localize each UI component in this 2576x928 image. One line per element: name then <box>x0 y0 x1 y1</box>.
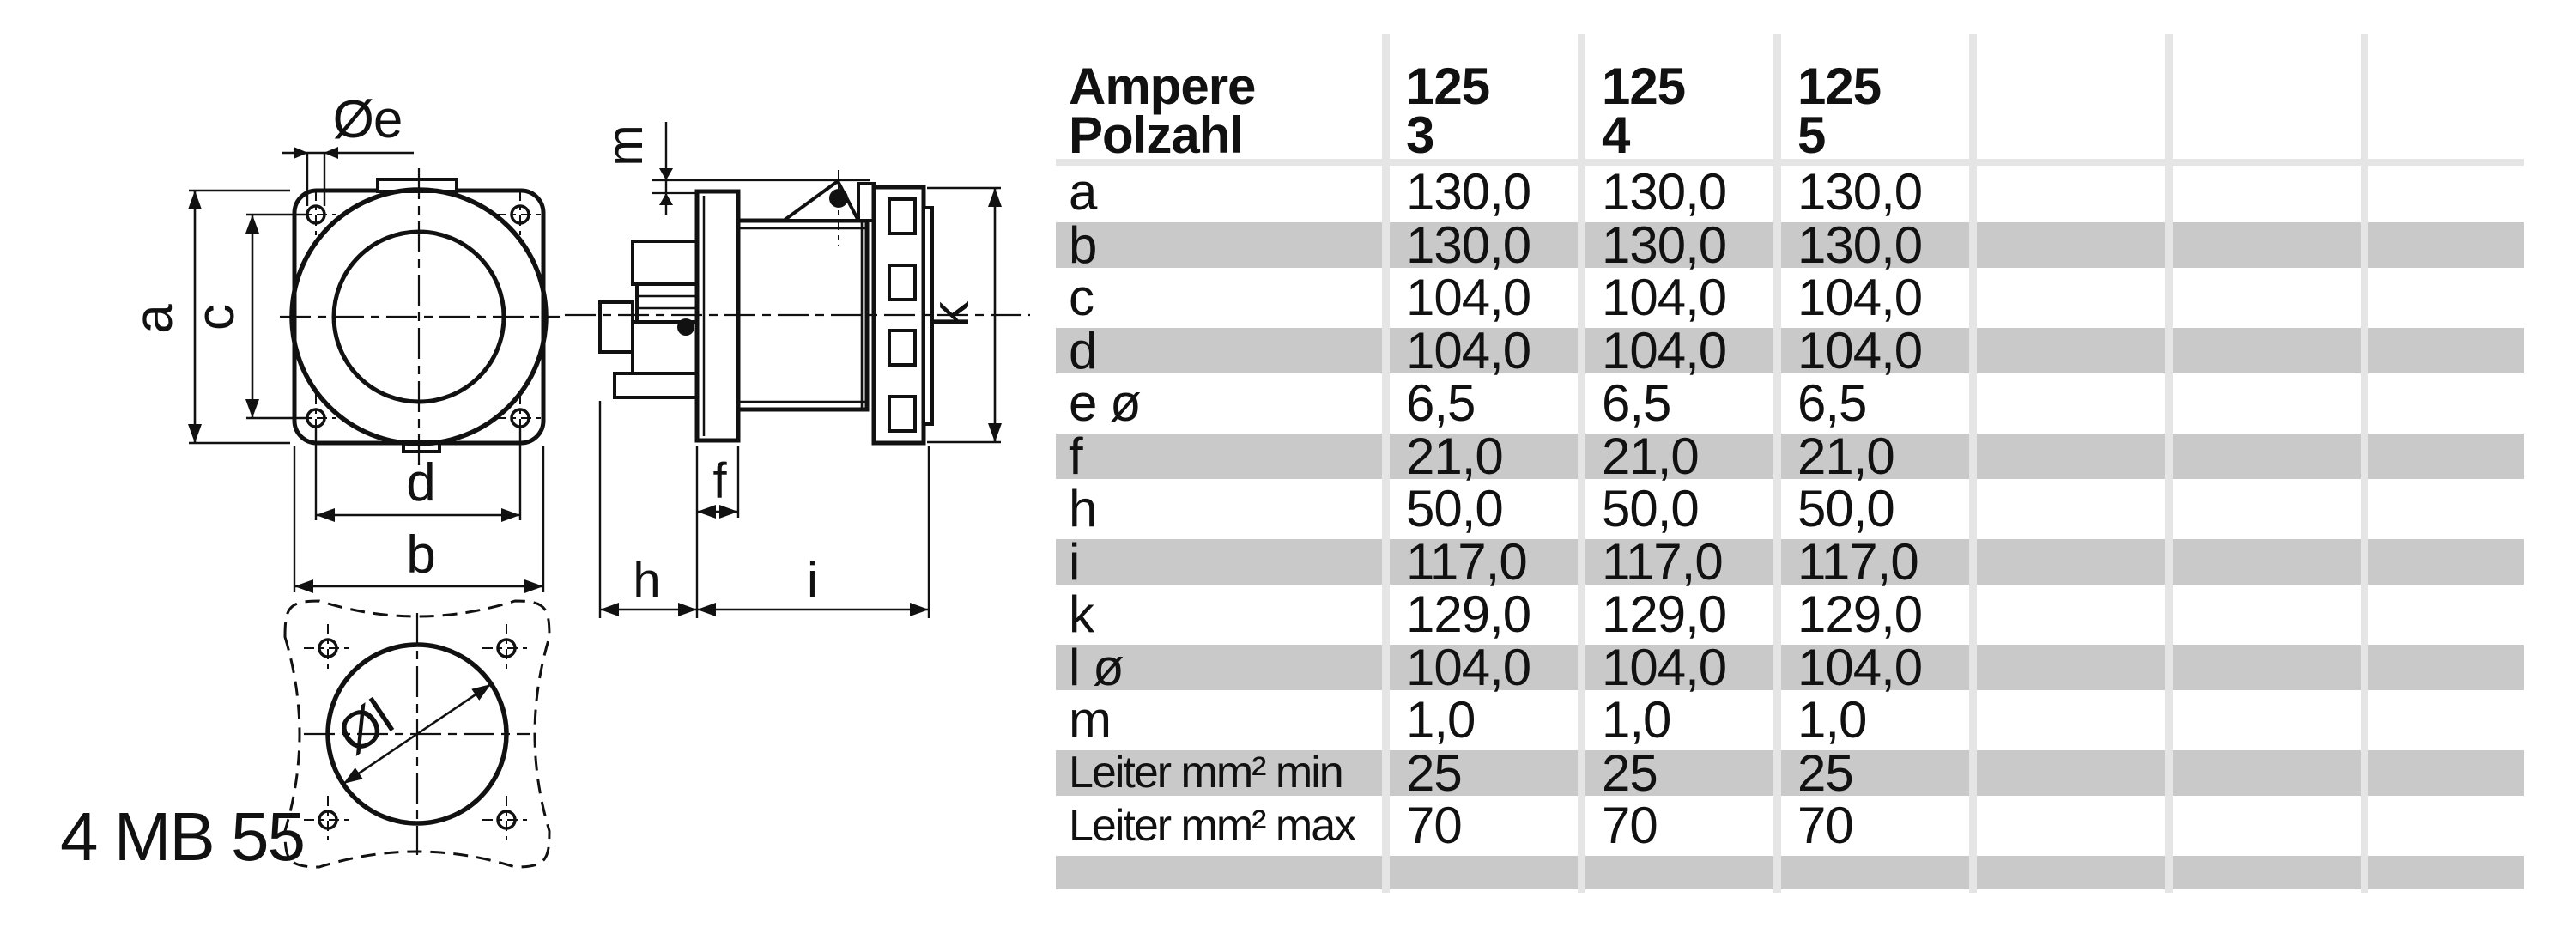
column-separator <box>2165 34 2173 893</box>
cell: 104,0 <box>1578 638 1773 697</box>
cell: 25 <box>1382 743 1578 803</box>
cell: 130,0 <box>1382 162 1578 221</box>
cell: 130,0 <box>1773 162 1969 221</box>
header-polzahl-label: Polzahl <box>1069 111 1382 160</box>
cell: 1,0 <box>1382 690 1578 749</box>
row-label: Leiter mm² max <box>1056 800 1382 852</box>
cell: 117,0 <box>1382 532 1578 591</box>
cell: 104,0 <box>1773 321 1969 380</box>
header-col-2: 125 4 <box>1578 34 1773 159</box>
cell: 104,0 <box>1382 638 1578 697</box>
cell: 130,0 <box>1382 215 1578 275</box>
column-separator <box>1578 34 1585 893</box>
row-label: f <box>1056 427 1382 486</box>
cell: 25 <box>1773 743 1969 803</box>
table-row-empty <box>1056 852 2524 893</box>
table-row-c: c104,0104,0104,0 <box>1056 271 2524 324</box>
table-row-d: d104,0104,0104,0 <box>1056 324 2524 378</box>
header-col-5 <box>2165 34 2361 159</box>
cell: 25 <box>1578 743 1773 803</box>
dim-label-i: i <box>807 553 817 609</box>
cell: 104,0 <box>1578 268 1773 327</box>
dim-label-e: Øe <box>333 90 403 149</box>
cell: 104,0 <box>1382 268 1578 327</box>
header-ampere-label: Ampere <box>1069 62 1382 111</box>
table-row-i: i117,0117,0117,0 <box>1056 536 2524 589</box>
cell: 6,5 <box>1578 373 1773 433</box>
dim-label-l: Øl <box>327 688 403 767</box>
header-label-cell: Ampere Polzahl <box>1056 34 1382 159</box>
row-label: c <box>1056 268 1382 327</box>
row-label: b <box>1056 215 1382 275</box>
dim-label-d: d <box>406 453 434 513</box>
datasheet-page: Øe a c d <box>0 0 2576 928</box>
cell: 21,0 <box>1578 427 1773 486</box>
cell: 21,0 <box>1773 427 1969 486</box>
dim-label-b: b <box>406 525 434 585</box>
dim-label-c: c <box>186 305 245 331</box>
cell: 129,0 <box>1382 585 1578 644</box>
table-row-l: l ø104,0104,0104,0 <box>1056 641 2524 694</box>
row-label: m <box>1056 690 1382 749</box>
cell: 70 <box>1578 796 1773 855</box>
table-row-e: e ø6,56,56,5 <box>1056 377 2524 430</box>
cell: 117,0 <box>1773 532 1969 591</box>
cell: 1,0 <box>1773 690 1969 749</box>
cell: 70 <box>1382 796 1578 855</box>
cell: 104,0 <box>1382 321 1578 380</box>
technical-drawing: Øe a c d <box>0 0 1056 928</box>
cell: 6,5 <box>1773 373 1969 433</box>
dim-m: m <box>597 122 673 215</box>
dim-label-a: a <box>124 304 184 334</box>
cell: 70 <box>1773 796 1969 855</box>
dim-f: f <box>697 446 738 518</box>
row-label: Leiter mm² min <box>1056 747 1382 798</box>
table-row-f: f21,021,021,0 <box>1056 430 2524 483</box>
row-label: d <box>1056 321 1382 380</box>
cell: 104,0 <box>1773 268 1969 327</box>
table-row-b: b130,0130,0130,0 <box>1056 219 2524 272</box>
spec-table: Ampere Polzahl 125 3 125 4 125 5 <box>1056 34 2524 893</box>
table-row-a: a130,0130,0130,0 <box>1056 166 2524 219</box>
row-label: l ø <box>1056 638 1382 697</box>
cell: 50,0 <box>1382 479 1578 538</box>
cell: 1,0 <box>1578 690 1773 749</box>
column-separator <box>2361 34 2368 893</box>
cell: 117,0 <box>1578 532 1773 591</box>
row-label: k <box>1056 585 1382 644</box>
front-view: Øe a c d <box>124 90 560 592</box>
cell: 50,0 <box>1578 479 1773 538</box>
cell: 50,0 <box>1773 479 1969 538</box>
column-separator <box>1382 34 1390 893</box>
table-row-leiter-min: Leiter mm² min252525 <box>1056 747 2524 800</box>
row-label: a <box>1056 162 1382 221</box>
table-row-m: m1,01,01,0 <box>1056 694 2524 747</box>
header-col-1: 125 3 <box>1382 34 1578 159</box>
column-separator <box>1969 34 1977 893</box>
cable-gland <box>600 241 697 397</box>
dim-label-k: k <box>921 300 980 328</box>
cell: 6,5 <box>1382 373 1578 433</box>
column-separator <box>1773 34 1781 893</box>
cell: 104,0 <box>1773 638 1969 697</box>
cell: 130,0 <box>1578 215 1773 275</box>
bottom-view: Øl <box>285 601 549 867</box>
cell: 21,0 <box>1382 427 1578 486</box>
header-col-4 <box>1969 34 2165 159</box>
dim-label-f: f <box>712 453 727 509</box>
table-row-k: k129,0129,0129,0 <box>1056 588 2524 641</box>
cell: 129,0 <box>1578 585 1773 644</box>
table-row-leiter-max: Leiter mm² max707070 <box>1056 799 2524 852</box>
dim-label-m: m <box>597 125 653 166</box>
cell: 130,0 <box>1578 162 1773 221</box>
cell: 129,0 <box>1773 585 1969 644</box>
table-row-h: h50,050,050,0 <box>1056 482 2524 536</box>
row-label: e ø <box>1056 373 1382 433</box>
cell: 104,0 <box>1578 321 1773 380</box>
side-view: m k f h i <box>565 122 1030 618</box>
header-col-6 <box>2361 34 2524 159</box>
row-label: h <box>1056 479 1382 538</box>
cell: 130,0 <box>1773 215 1969 275</box>
table-header: Ampere Polzahl 125 3 125 4 125 5 <box>1056 34 2524 159</box>
table-body: a130,0130,0130,0 b130,0130,0130,0 c104,0… <box>1056 166 2524 893</box>
dim-label-h: h <box>633 553 659 609</box>
row-label: i <box>1056 532 1382 591</box>
header-col-3: 125 5 <box>1773 34 1969 159</box>
part-number: 4 MB 55 <box>60 798 304 875</box>
